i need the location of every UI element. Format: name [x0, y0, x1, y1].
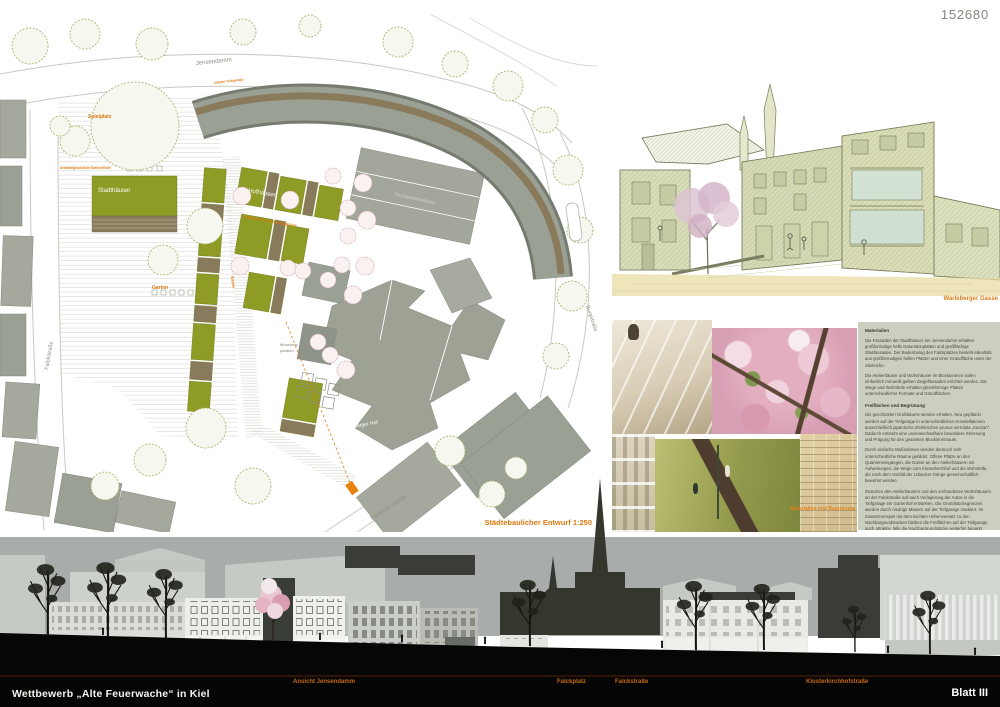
section-label-jensendamm: Ansicht Jensendamm	[293, 679, 355, 685]
label-stadthaeuser: Stadthäuser	[98, 188, 130, 194]
label-sommerlinde: denkmalgeschützte Sommerlinde	[60, 166, 111, 170]
materials-paragraph: Die Fassaden der Stadthäuser am Jensenda…	[865, 338, 993, 369]
label-jensendamm: Jensendamm	[196, 57, 232, 67]
photo-stone-plaza-steps	[612, 320, 712, 434]
materials-paragraph: Die Atelierhäuser und Wohnhäuser im Bloc…	[865, 373, 993, 398]
section-label-klosterkirchhofstrasse: Klosterkirchhofstraße	[806, 679, 868, 685]
label-museumspavillon-2: pavillon	[280, 348, 294, 353]
competition-board: Kirchenverwaltung Großstadthäuser	[0, 0, 1000, 707]
open-space-heading: Freiflächen und Begrünung	[865, 403, 993, 410]
person-silhouette	[628, 324, 639, 340]
label-falckstrasse: Falckstraße	[44, 341, 55, 370]
sheet-number: Blatt III	[951, 687, 988, 699]
label-spielplatz: Spielplatz	[88, 114, 112, 120]
materials-heading: Materialien	[865, 328, 993, 335]
label-garten: Garten	[152, 285, 168, 291]
hofhaeuser-row-3	[243, 272, 287, 314]
perspective-sketch	[612, 78, 1000, 296]
section-label-falckstrasse: Falckstraße	[615, 679, 648, 685]
grossstadthaeuser-label: Großstadthäuser	[318, 135, 363, 148]
street-elevation	[0, 460, 1000, 675]
photo-cherry-blossoms	[712, 328, 857, 434]
open-space-paragraph: Die geschützten Großbäume werden erhalte…	[865, 412, 993, 443]
competition-number: 152680	[941, 7, 989, 22]
sketch-caption: Warleberger Gasse	[612, 296, 998, 302]
bus-shape	[565, 202, 582, 241]
label-zufahrt-tiefgarage: Zufahrt Tiefgarage	[214, 77, 244, 85]
section-label-falckplatz: Falckplatz	[557, 679, 586, 685]
sketch-buildings	[620, 84, 1000, 280]
site-plan-drawing: Kirchenverwaltung Großstadthäuser	[0, 8, 600, 532]
label-museumspavillon-1: Museums-	[280, 342, 299, 347]
footer-bar: Wettbewerb „Alte Feuerwache“ in Kiel Bla…	[0, 675, 1000, 707]
board-title: Wettbewerb „Alte Feuerwache“ in Kiel	[12, 688, 210, 700]
